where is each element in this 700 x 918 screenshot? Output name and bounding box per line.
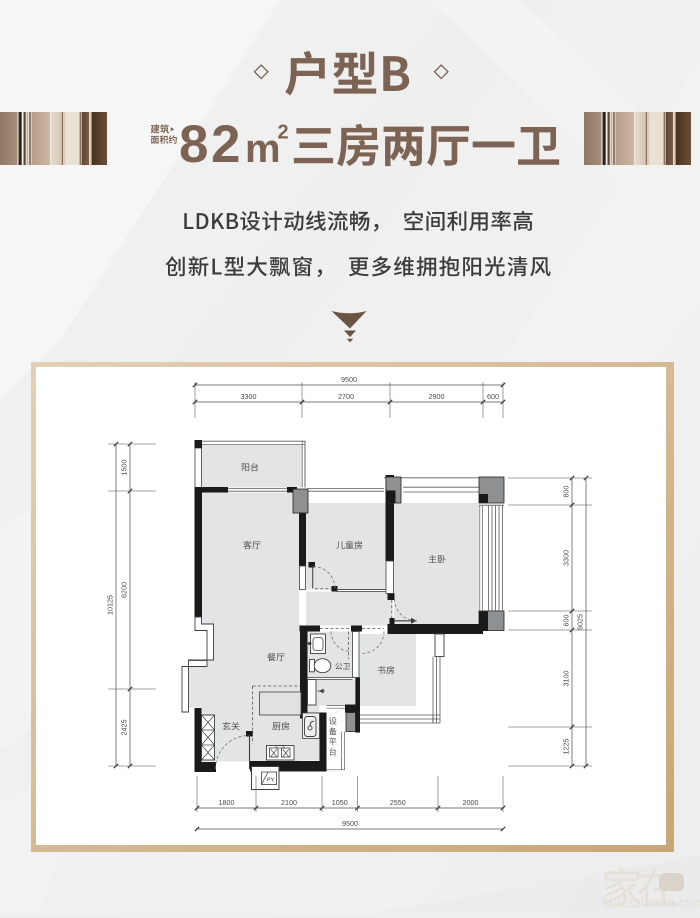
svg-text:1500: 1500: [120, 460, 129, 476]
svg-text:6200: 6200: [120, 582, 129, 598]
svg-text:2700: 2700: [338, 392, 354, 401]
svg-text:600: 600: [562, 615, 571, 627]
svg-text:2425: 2425: [120, 720, 129, 736]
svg-text:2900: 2900: [429, 392, 445, 401]
svg-text:600: 600: [487, 392, 499, 401]
svg-text:82: 82: [179, 115, 243, 174]
svg-text:bbs.szhome.com: bbs.szhome.com: [602, 895, 700, 910]
svg-text:2: 2: [278, 122, 289, 144]
svg-text:m: m: [245, 127, 281, 171]
svg-text:9025: 9025: [576, 614, 585, 630]
svg-text:3300: 3300: [562, 550, 571, 566]
svg-text:3300: 3300: [241, 392, 257, 401]
svg-text:9500: 9500: [341, 375, 357, 384]
svg-text:2550: 2550: [390, 798, 406, 807]
svg-text:PY: PY: [267, 778, 275, 784]
svg-text:800: 800: [562, 486, 571, 498]
svg-text:2100: 2100: [281, 798, 297, 807]
svg-text:2000: 2000: [463, 798, 479, 807]
svg-text:1225: 1225: [562, 739, 571, 755]
svg-text:1050: 1050: [332, 798, 348, 807]
svg-text:10125: 10125: [106, 595, 115, 615]
svg-text:3100: 3100: [562, 671, 571, 687]
svg-text:9500: 9500: [342, 819, 358, 828]
svg-text:1800: 1800: [219, 798, 235, 807]
